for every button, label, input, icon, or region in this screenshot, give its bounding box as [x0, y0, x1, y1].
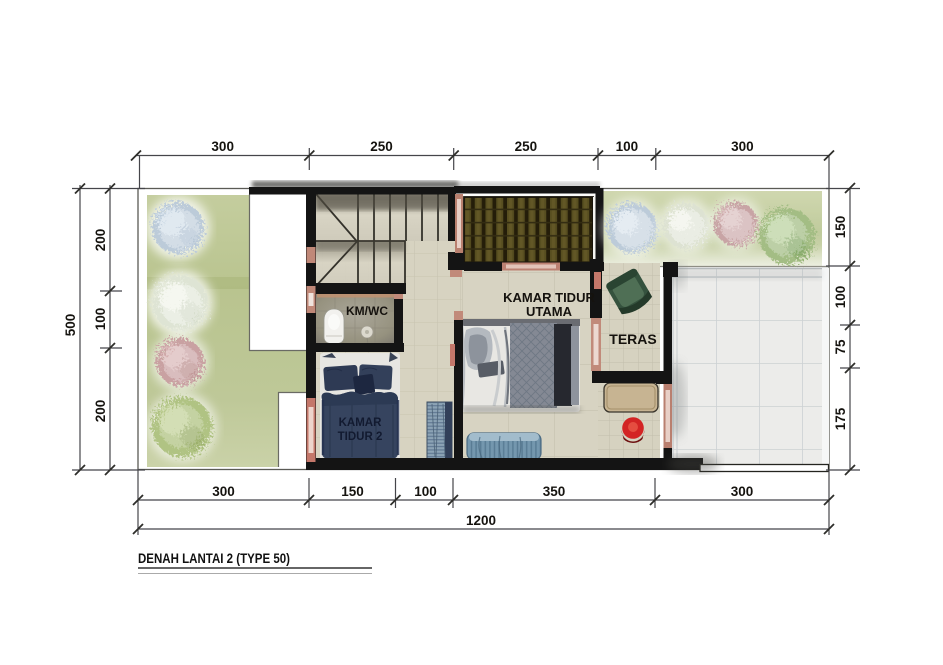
- svg-text:TIDUR 2: TIDUR 2: [338, 431, 383, 443]
- svg-text:100: 100: [93, 308, 108, 331]
- svg-text:350: 350: [543, 484, 566, 499]
- svg-text:75: 75: [833, 339, 848, 355]
- svg-text:300: 300: [211, 139, 234, 154]
- svg-text:100: 100: [616, 139, 639, 154]
- svg-text:250: 250: [370, 139, 393, 154]
- svg-text:500: 500: [63, 314, 78, 337]
- svg-text:100: 100: [414, 484, 437, 499]
- svg-text:300: 300: [212, 484, 235, 499]
- svg-text:300: 300: [731, 139, 754, 154]
- svg-text:150: 150: [341, 484, 364, 499]
- svg-text:250: 250: [515, 139, 538, 154]
- svg-text:KAMAR: KAMAR: [339, 417, 382, 429]
- svg-text:1200: 1200: [466, 513, 496, 528]
- svg-text:KM/WC: KM/WC: [346, 304, 388, 318]
- svg-text:300: 300: [731, 484, 754, 499]
- svg-text:175: 175: [833, 407, 848, 430]
- svg-text:KAMAR TIDUR: KAMAR TIDUR: [503, 290, 595, 305]
- svg-text:TERAS: TERAS: [609, 331, 656, 347]
- svg-text:200: 200: [93, 229, 108, 252]
- svg-text:100: 100: [833, 286, 848, 309]
- svg-text:UTAMA: UTAMA: [526, 304, 573, 319]
- svg-text:DENAH LANTAI 2 (TYPE 50): DENAH LANTAI 2 (TYPE 50): [138, 551, 290, 566]
- svg-text:150: 150: [833, 216, 848, 239]
- svg-text:200: 200: [93, 400, 108, 423]
